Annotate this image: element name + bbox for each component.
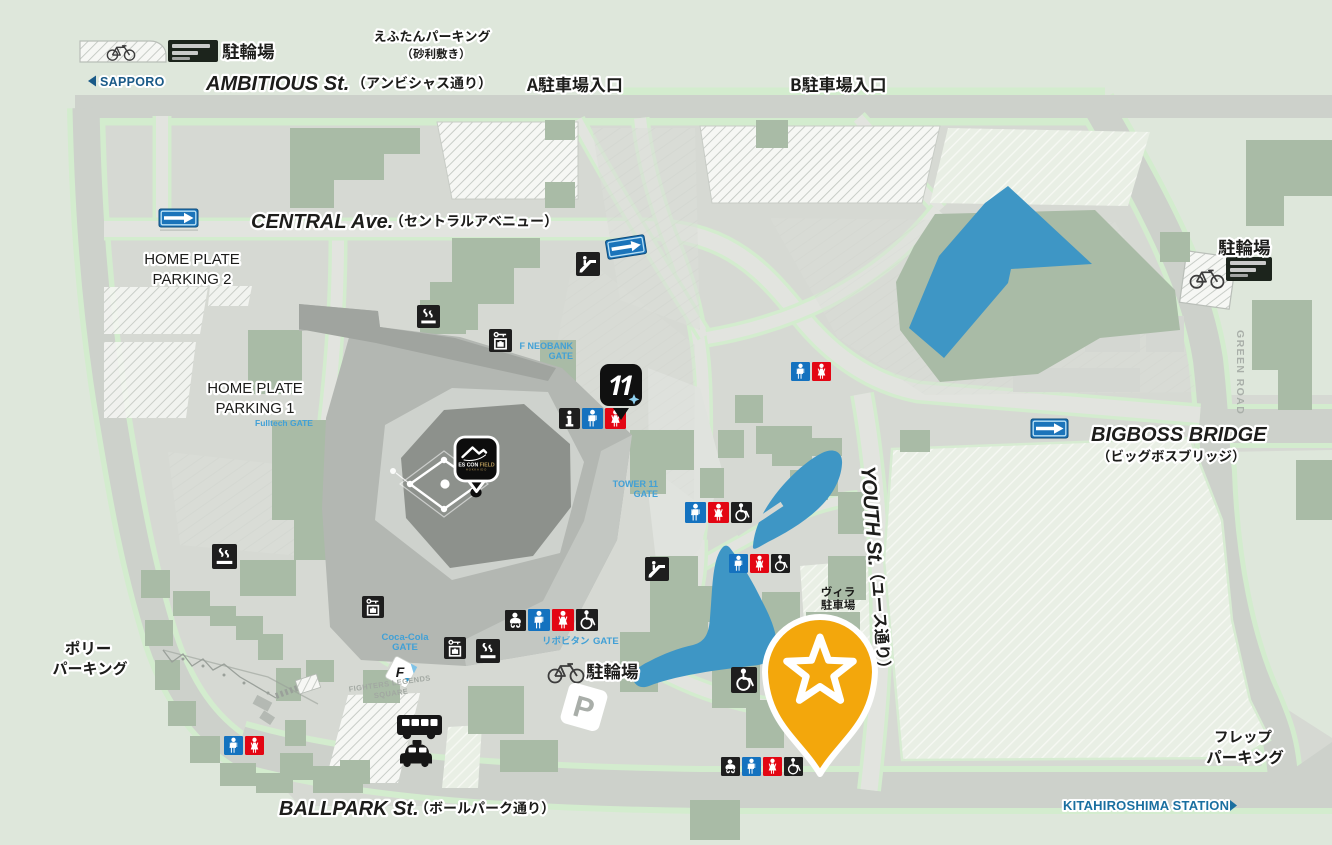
svg-text:HOKKAIDO: HOKKAIDO <box>466 468 487 472</box>
svg-text:HOME PLATE: HOME PLATE <box>207 380 303 397</box>
svg-text:GREEN ROAD: GREEN ROAD <box>1234 330 1246 415</box>
svg-text:GATE: GATE <box>392 642 418 653</box>
svg-text:TOWER 11: TOWER 11 <box>613 479 658 489</box>
svg-text:GATE: GATE <box>593 636 619 647</box>
svg-text:BIGBOSS BRIDGE: BIGBOSS BRIDGE <box>1091 424 1267 446</box>
svg-text:F NEOBANK: F NEOBANK <box>520 341 574 351</box>
svg-text:GATE: GATE <box>634 489 658 499</box>
svg-text:PARKING 1: PARKING 1 <box>216 400 295 417</box>
svg-text:CENTRAL Ave.: CENTRAL Ave. <box>251 211 393 233</box>
svg-text:SAPPORO: SAPPORO <box>100 75 165 89</box>
svg-text:KITAHIROSHIMA STATION: KITAHIROSHIMA STATION <box>1063 798 1229 813</box>
svg-text:GATE: GATE <box>549 351 573 361</box>
svg-text:BALLPARK St.: BALLPARK St. <box>279 798 419 820</box>
svg-text:HOME PLATE: HOME PLATE <box>144 251 240 268</box>
svg-text:AMBITIOUS St.: AMBITIOUS St. <box>205 73 349 95</box>
svg-text:Fulltech GATE: Fulltech GATE <box>255 418 313 428</box>
svg-text:PARKING 2: PARKING 2 <box>153 271 232 288</box>
